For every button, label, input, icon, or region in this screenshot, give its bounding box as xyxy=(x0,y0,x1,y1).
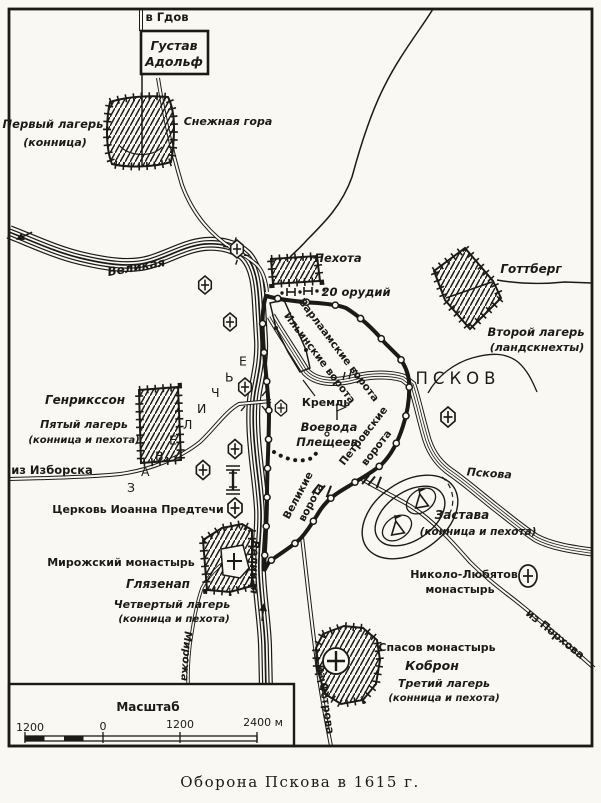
church-icon xyxy=(196,461,209,480)
fourth-camp-type: (конница и пехота) xyxy=(118,614,229,625)
church-icon xyxy=(441,407,455,427)
first-camp-label: Первый лагерь xyxy=(3,117,104,131)
kobron-label: Коброн xyxy=(405,658,459,673)
ferry-icon xyxy=(226,466,240,494)
first-camp-type: (конница) xyxy=(23,136,87,149)
glyazenap-label: Глязенап xyxy=(126,577,190,591)
scale-tick: 1200 xyxy=(166,718,194,731)
church-john-label: Церковь Иоанна Предтечи xyxy=(52,503,223,516)
nikolo-label-line2: монастырь xyxy=(425,583,494,596)
spasov-label: Спасов монастырь xyxy=(378,641,495,654)
road-from-north xyxy=(290,9,433,257)
gottberg-label: Готтберг xyxy=(500,262,562,276)
snezhnaya-label: Снежная гора xyxy=(184,115,273,128)
scale-tick: 1200 xyxy=(16,721,44,734)
scale-tick: 2400 м xyxy=(243,716,283,729)
mirozha-river-label: Мирожа xyxy=(178,631,193,682)
road-east xyxy=(497,280,592,283)
city-name-label: ПСКОВ xyxy=(416,369,501,388)
road-porkhov-label: из Порхова xyxy=(523,607,587,662)
camp-infantry xyxy=(271,256,320,284)
third-camp-label: Третий лагерь xyxy=(398,677,490,690)
road-gdov-label: в Гдов xyxy=(145,10,188,24)
velikaya-river-label-2: Великая xyxy=(248,540,262,594)
second-camp-label: Второй лагерь xyxy=(487,325,584,339)
camp-fourth xyxy=(203,524,252,592)
fourth-camp-label: Четвертый лагерь xyxy=(114,598,230,611)
scale-tick: 0 xyxy=(100,720,107,733)
hq-name-line2: Адольф xyxy=(144,54,203,69)
outpost-type: (конница и пехота) xyxy=(420,526,537,538)
pskov-defense-map: Густав Адольф Масштаб 1200 0 1200 2400 м… xyxy=(0,0,601,803)
mirozhsky-label: Мирожский монастырь xyxy=(47,556,195,569)
church-icon xyxy=(199,276,212,294)
guns-label: 20 орудий xyxy=(321,285,390,299)
third-camp-type: (конница и пехота) xyxy=(388,693,499,704)
fifth-camp-label: Пятый лагерь xyxy=(40,418,128,431)
road-izborsk-label: из Изборска xyxy=(11,463,93,477)
labels: в Гдов Первый лагерь (конница) Снежная г… xyxy=(3,10,588,735)
scale-box: Масштаб 1200 0 1200 2400 м xyxy=(9,684,294,746)
nikolo-monastery-icon xyxy=(519,565,537,587)
inner-wall xyxy=(274,449,320,460)
henriksson-label: Генрикссон xyxy=(45,393,125,407)
infantry-label: Пехота xyxy=(314,251,361,265)
outpost-label: Застава xyxy=(435,508,489,522)
camp-second xyxy=(434,248,501,329)
map-caption: Оборона Пскова в 1615 г. xyxy=(180,773,420,791)
fifth-camp-type: (конница и пехота) xyxy=(28,435,139,446)
camp-first xyxy=(107,96,174,166)
church-icon xyxy=(275,400,286,416)
church-icon xyxy=(224,313,237,331)
tent-icon xyxy=(388,514,405,535)
hq-box: Густав Адольф xyxy=(141,31,208,74)
tent-icon xyxy=(412,487,429,508)
pskova-river-label: Пскова xyxy=(466,465,512,481)
hq-name-line1: Густав xyxy=(150,38,197,53)
second-camp-type: (ландскнехты) xyxy=(490,341,584,354)
scale-title: Масштаб xyxy=(116,700,179,714)
voevoda-label-line1: Воевода xyxy=(301,420,358,434)
nikolo-label-line1: Николо-Любятов xyxy=(410,568,518,581)
church-icon xyxy=(228,498,242,518)
church-icon xyxy=(228,440,241,459)
map-page: Густав Адольф Масштаб 1200 0 1200 2400 м… xyxy=(0,0,601,803)
